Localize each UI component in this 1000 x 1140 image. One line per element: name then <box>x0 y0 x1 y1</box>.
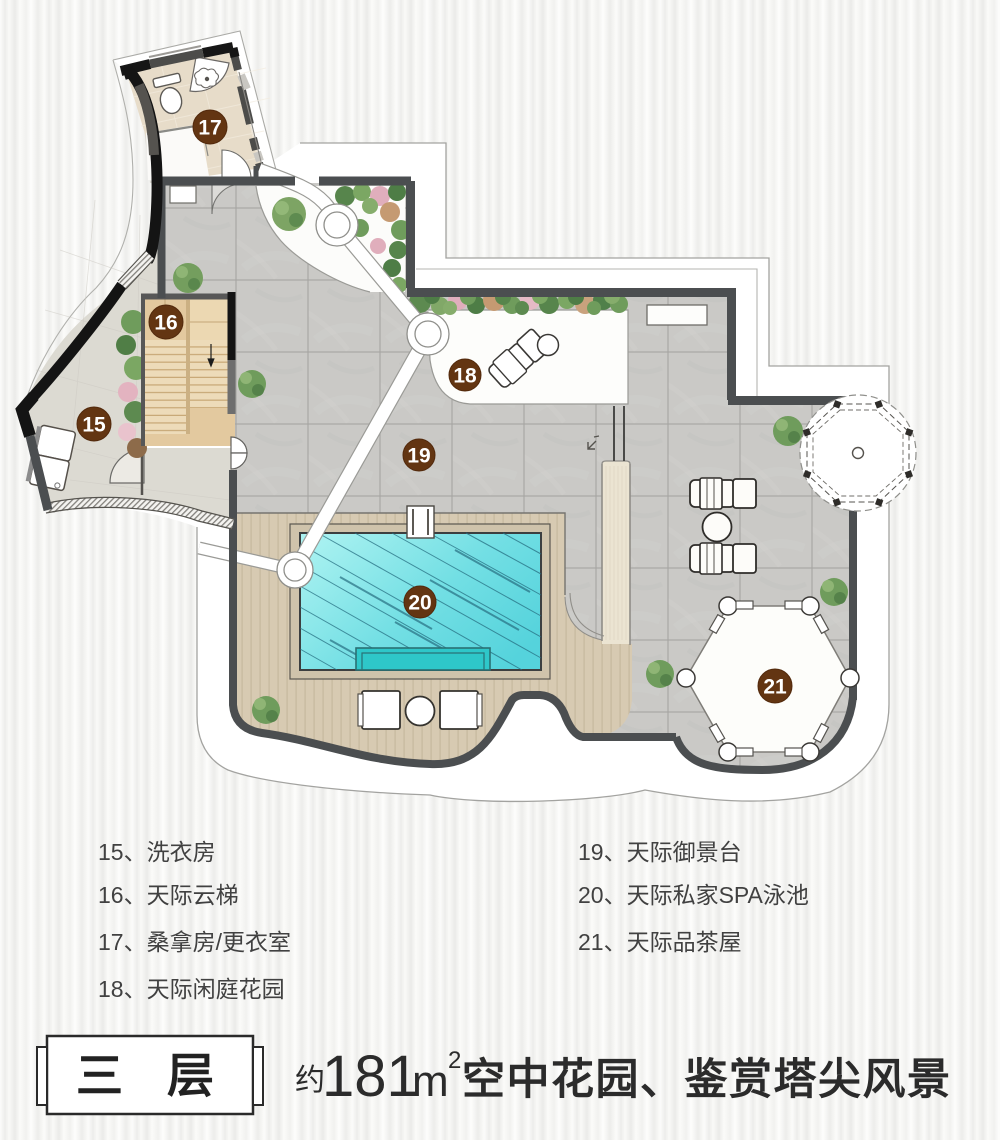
svg-text:16、天际云梯: 16、天际云梯 <box>98 882 239 908</box>
svg-text:21: 21 <box>763 676 787 699</box>
svg-text:20: 20 <box>408 592 431 615</box>
svg-text:21、天际品茶屋: 21、天际品茶屋 <box>578 929 742 955</box>
svg-text:181: 181 <box>322 1044 419 1109</box>
svg-text:20、天际私家SPA泳池: 20、天际私家SPA泳池 <box>578 882 809 908</box>
svg-text:19: 19 <box>407 445 430 468</box>
svg-text:17: 17 <box>198 117 221 140</box>
svg-text:层: 层 <box>167 1049 214 1102</box>
svg-text:三: 三 <box>76 1049 123 1102</box>
svg-text:16: 16 <box>154 312 177 335</box>
svg-text:15: 15 <box>82 414 106 437</box>
svg-text:约: 约 <box>295 1064 325 1097</box>
svg-text:m: m <box>412 1057 449 1106</box>
svg-text:18: 18 <box>453 365 477 388</box>
svg-text:19、天际御景台: 19、天际御景台 <box>578 839 742 865</box>
svg-text:17、桑拿房/更衣室: 17、桑拿房/更衣室 <box>98 929 291 955</box>
svg-text:18、天际闲庭花园: 18、天际闲庭花园 <box>98 976 285 1002</box>
svg-text:2: 2 <box>448 1047 461 1074</box>
svg-text:空中花园、鉴赏塔尖风景: 空中花园、鉴赏塔尖风景 <box>462 1056 952 1104</box>
svg-text:15、洗衣房: 15、洗衣房 <box>98 839 216 865</box>
